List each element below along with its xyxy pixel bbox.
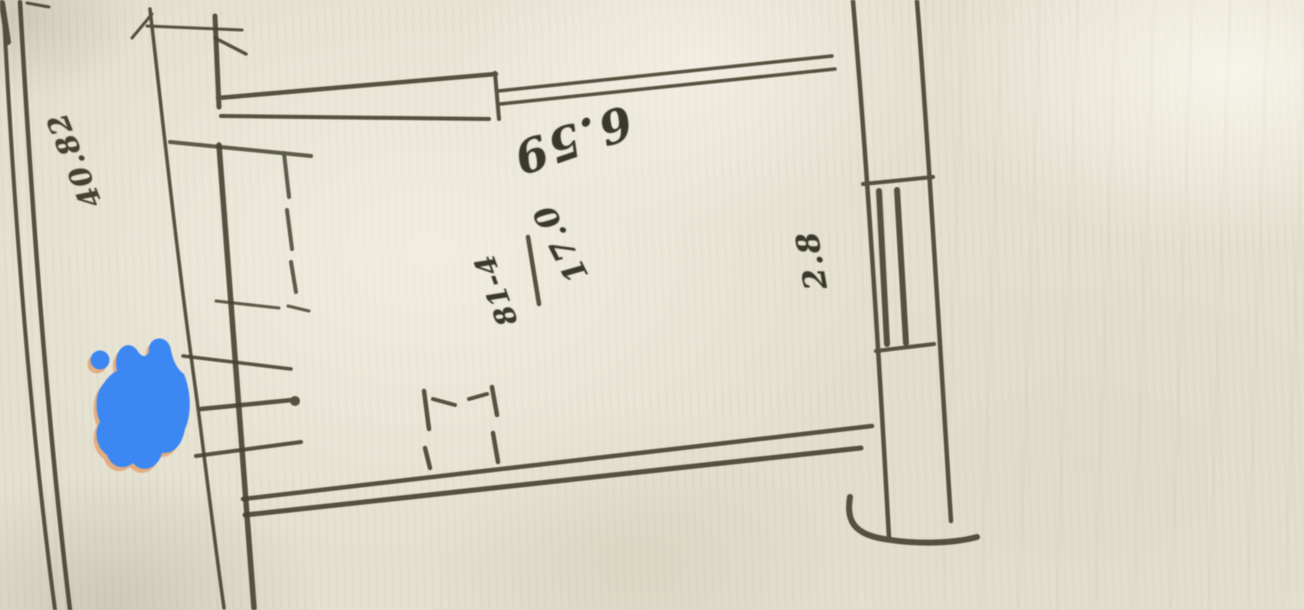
blue-marker-blob	[91, 339, 190, 469]
closet-dashed-outline	[170, 142, 311, 311]
window-mullion-1	[879, 191, 887, 344]
top-wall	[215, 16, 835, 119]
floor-plan-drawing	[0, 0, 1304, 610]
wall-end-curve	[849, 497, 977, 543]
exterior-wall-left	[2, 2, 70, 610]
opening-dashed-marks	[424, 387, 498, 468]
window-sill-top	[863, 177, 933, 184]
window-mullion-2	[897, 190, 906, 343]
right-wall-window	[849, 1, 977, 543]
marker-dot	[91, 351, 110, 370]
interior-wall	[132, 9, 254, 608]
floor-plan-photo: 6.59 40.82 2.8 17.0 81-4	[0, 0, 1304, 610]
room-label-fraction-bar	[528, 237, 539, 304]
room-bottom-wall	[243, 426, 872, 515]
